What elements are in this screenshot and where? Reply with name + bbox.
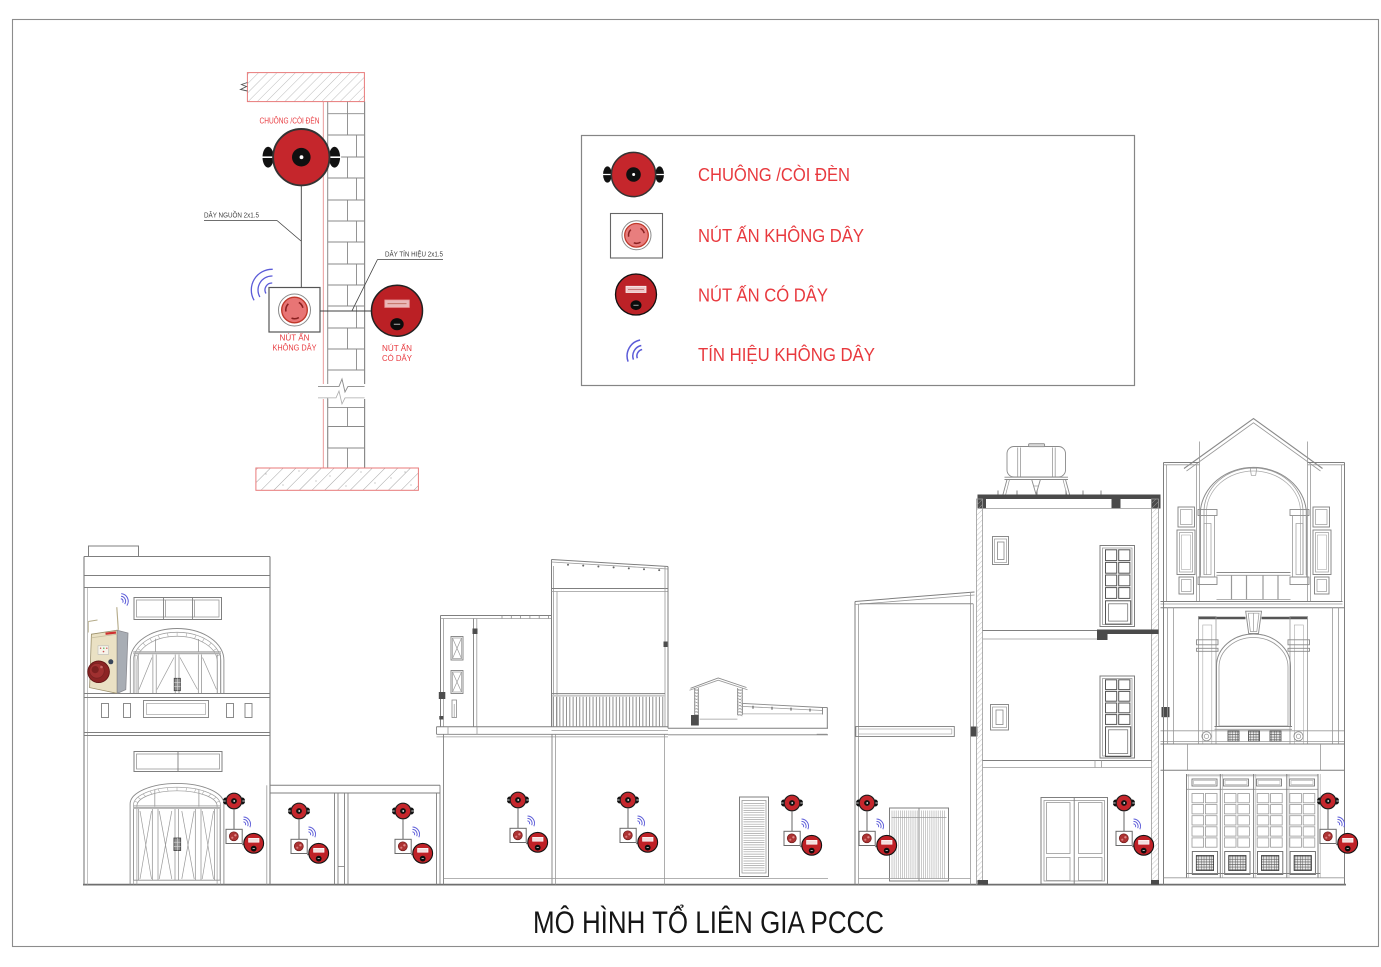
svg-text:CÓ DÂY: CÓ DÂY: [382, 354, 413, 363]
svg-text:KHÔNG DÂY: KHÔNG DÂY: [273, 344, 318, 353]
svg-text:DÂY TÍN HIỆU 2x1.5: DÂY TÍN HIỆU 2x1.5: [385, 250, 443, 259]
svg-text:TÍN HIỆU KHÔNG DÂY: TÍN HIỆU KHÔNG DÂY: [698, 344, 875, 365]
svg-text:NÚT ẤN CÓ DÂY: NÚT ẤN CÓ DÂY: [698, 285, 828, 306]
svg-text:NÚT ẤN: NÚT ẤN: [382, 343, 412, 353]
svg-text:MÔ HÌNH TỔ LIÊN GIA PCCC: MÔ HÌNH TỔ LIÊN GIA PCCC: [533, 904, 884, 940]
svg-text:DÂY NGUỒN 2x1.5: DÂY NGUỒN 2x1.5: [204, 210, 259, 220]
svg-text:NÚT ẤN KHÔNG DÂY: NÚT ẤN KHÔNG DÂY: [698, 225, 864, 246]
svg-text:NÚT ẤN: NÚT ẤN: [280, 333, 310, 343]
svg-text:CHUÔNG /CÒI ĐÈN: CHUÔNG /CÒI ĐÈN: [260, 116, 320, 126]
svg-text:CHUÔNG /CÒI ĐÈN: CHUÔNG /CÒI ĐÈN: [698, 164, 850, 185]
